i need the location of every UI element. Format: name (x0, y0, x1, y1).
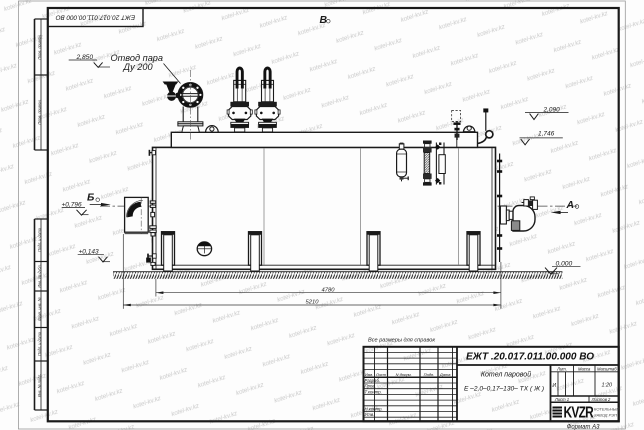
svg-text:Формат А3: Формат А3 (567, 425, 600, 430)
svg-text:Подп.: Подп. (424, 372, 435, 377)
svg-text:4780: 4780 (322, 287, 336, 293)
svg-text:Масса: Масса (578, 366, 591, 371)
svg-text:Инв. № подл.: Инв. № подл. (38, 374, 42, 398)
svg-text:Дата: Дата (439, 372, 451, 377)
svg-text:ЗАВОД РЭП: ЗАВОД РЭП (594, 412, 617, 417)
svg-text:Взам. инв. №: Взам. инв. № (38, 297, 42, 320)
svg-text:Изм.: Изм. (365, 372, 374, 377)
svg-text:Т.контр.: Т.контр. (365, 389, 382, 394)
svg-text:Котел паровой: Котел паровой (481, 370, 531, 378)
svg-text:KVZR: KVZR (564, 405, 595, 422)
svg-text:Лист: Лист (375, 372, 387, 377)
svg-text:Пров.: Пров. (365, 384, 376, 389)
svg-text:5210: 5210 (306, 300, 320, 306)
svg-text:Лит.: Лит. (556, 366, 567, 371)
svg-text:N докум.: N докум. (396, 372, 412, 377)
svg-text:И: И (552, 383, 556, 389)
svg-text:ЕЖТ .20.017.011.00.000 ВО: ЕЖТ .20.017.011.00.000 ВО (466, 351, 594, 362)
svg-text:Инв. № дубл.: Инв. № дубл. (38, 264, 42, 287)
svg-text:Б: Б (87, 193, 94, 204)
svg-text:Листов 2: Листов 2 (591, 397, 611, 402)
svg-text:Подп. и дата: Подп. и дата (38, 228, 42, 252)
svg-text:1,746: 1,746 (538, 131, 555, 138)
svg-text:Ду 200: Ду 200 (123, 62, 154, 72)
svg-text:1:20: 1:20 (602, 383, 613, 389)
svg-text:Лист 1: Лист 1 (554, 397, 569, 402)
svg-text:КОТЕЛЬНЫЙ: КОТЕЛЬНЫЙ (594, 406, 619, 411)
svg-text:А: А (566, 200, 575, 211)
svg-text:Н.контр.: Н.контр. (365, 407, 383, 412)
svg-text:Подп. и дата: Подп. и дата (38, 332, 42, 356)
svg-text:Все размеры для справок: Все размеры для справок (368, 338, 435, 344)
svg-text:Масштаб: Масштаб (597, 366, 617, 371)
svg-text:В: В (320, 15, 328, 26)
svg-text:Разраб.: Разраб. (365, 378, 381, 383)
svg-text:ЕЖТ 20.017.011.00.000 ВО: ЕЖТ 20.017.011.00.000 ВО (56, 14, 136, 21)
svg-text:Перв. примен.: Перв. примен. (38, 99, 42, 124)
svg-text:Перв. примен.: Перв. примен. (38, 34, 42, 59)
svg-text:Е –2,0–0,17–130– ТХ ( Ж ): Е –2,0–0,17–130– ТХ ( Ж ) (464, 386, 544, 393)
svg-text:Утв.: Утв. (365, 412, 375, 417)
